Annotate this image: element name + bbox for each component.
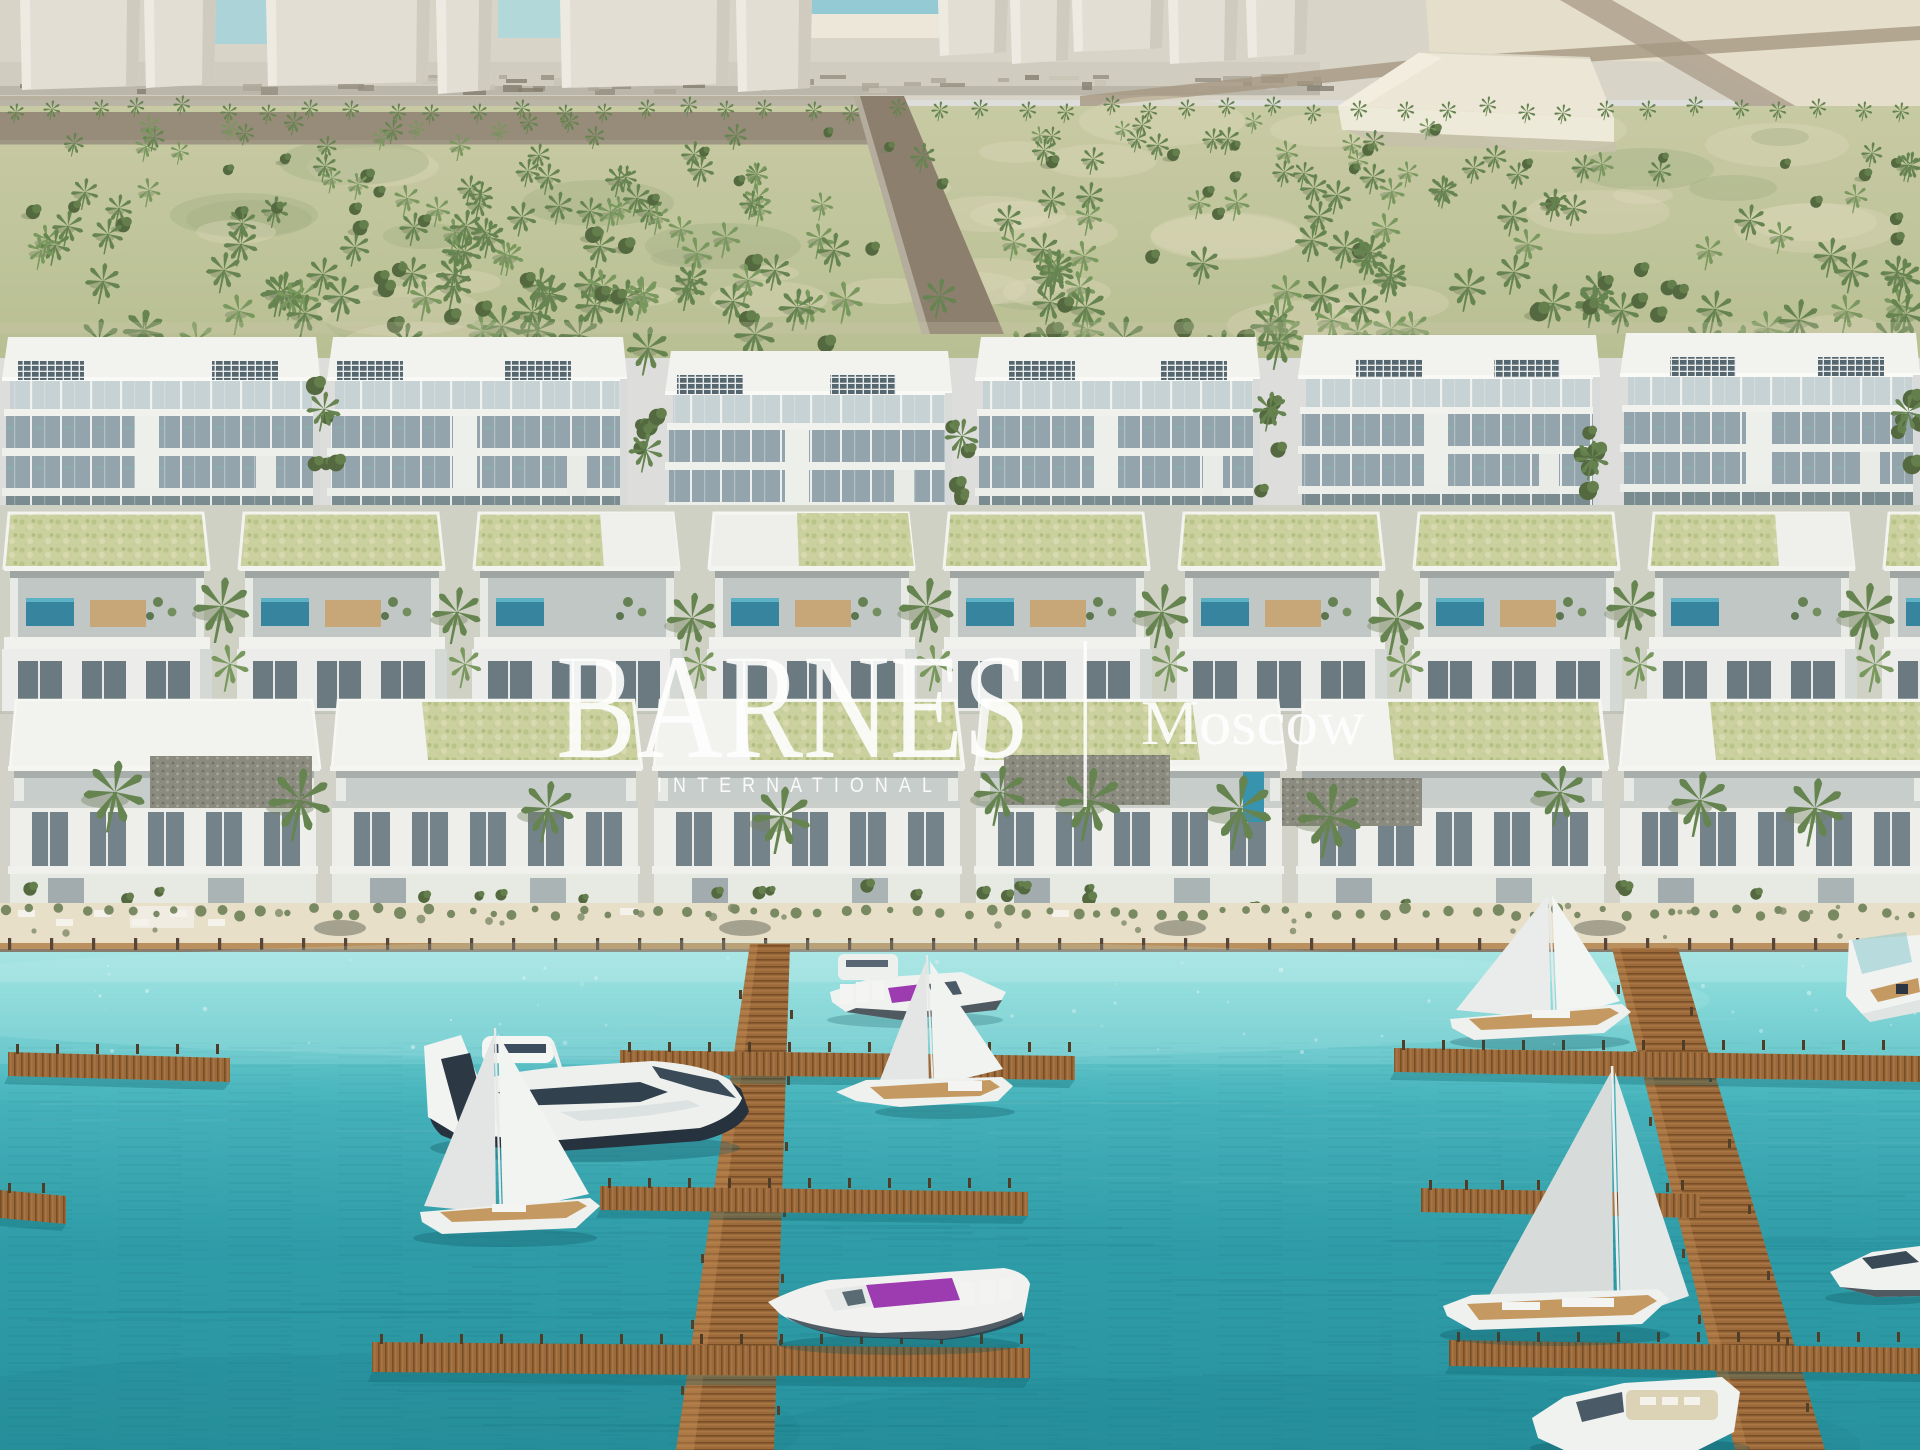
svg-text:INTERNATIONAL: INTERNATIONAL — [657, 774, 943, 797]
svg-text:BARNES: BARNES — [556, 624, 1030, 790]
svg-text:Moscow: Moscow — [1141, 687, 1365, 758]
